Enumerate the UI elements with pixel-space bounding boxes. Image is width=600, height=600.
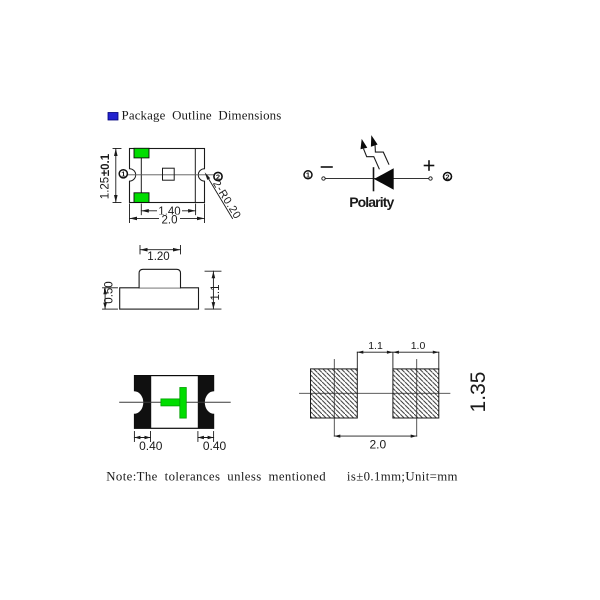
svg-text:1.1: 1.1: [210, 285, 222, 301]
svg-text:1: 1: [306, 171, 310, 180]
svg-text:1.25: 1.25: [100, 177, 112, 199]
svg-text:2-R0.20: 2-R0.20: [210, 178, 243, 221]
svg-text:Polarity: Polarity: [349, 194, 394, 210]
svg-text:0.40: 0.40: [139, 439, 163, 453]
svg-text:2: 2: [445, 172, 449, 181]
svg-text:1.20: 1.20: [147, 251, 169, 263]
svg-text:2.0: 2.0: [369, 438, 386, 452]
svg-text:1.0: 1.0: [411, 340, 426, 352]
svg-text:1.1: 1.1: [368, 340, 383, 352]
svg-text:0.50: 0.50: [104, 281, 116, 303]
svg-text:0.40: 0.40: [203, 439, 227, 453]
svg-text:2.0: 2.0: [162, 214, 178, 226]
svg-text:Note:The tolerances unless men: Note:The tolerances unless mentioned is±…: [106, 470, 458, 484]
svg-text:1.35: 1.35: [467, 372, 490, 413]
svg-text:±0.1: ±0.1: [100, 153, 112, 176]
svg-text:1: 1: [121, 170, 125, 179]
svg-text:Package Outline Dimensions: Package Outline Dimensions: [122, 109, 282, 123]
